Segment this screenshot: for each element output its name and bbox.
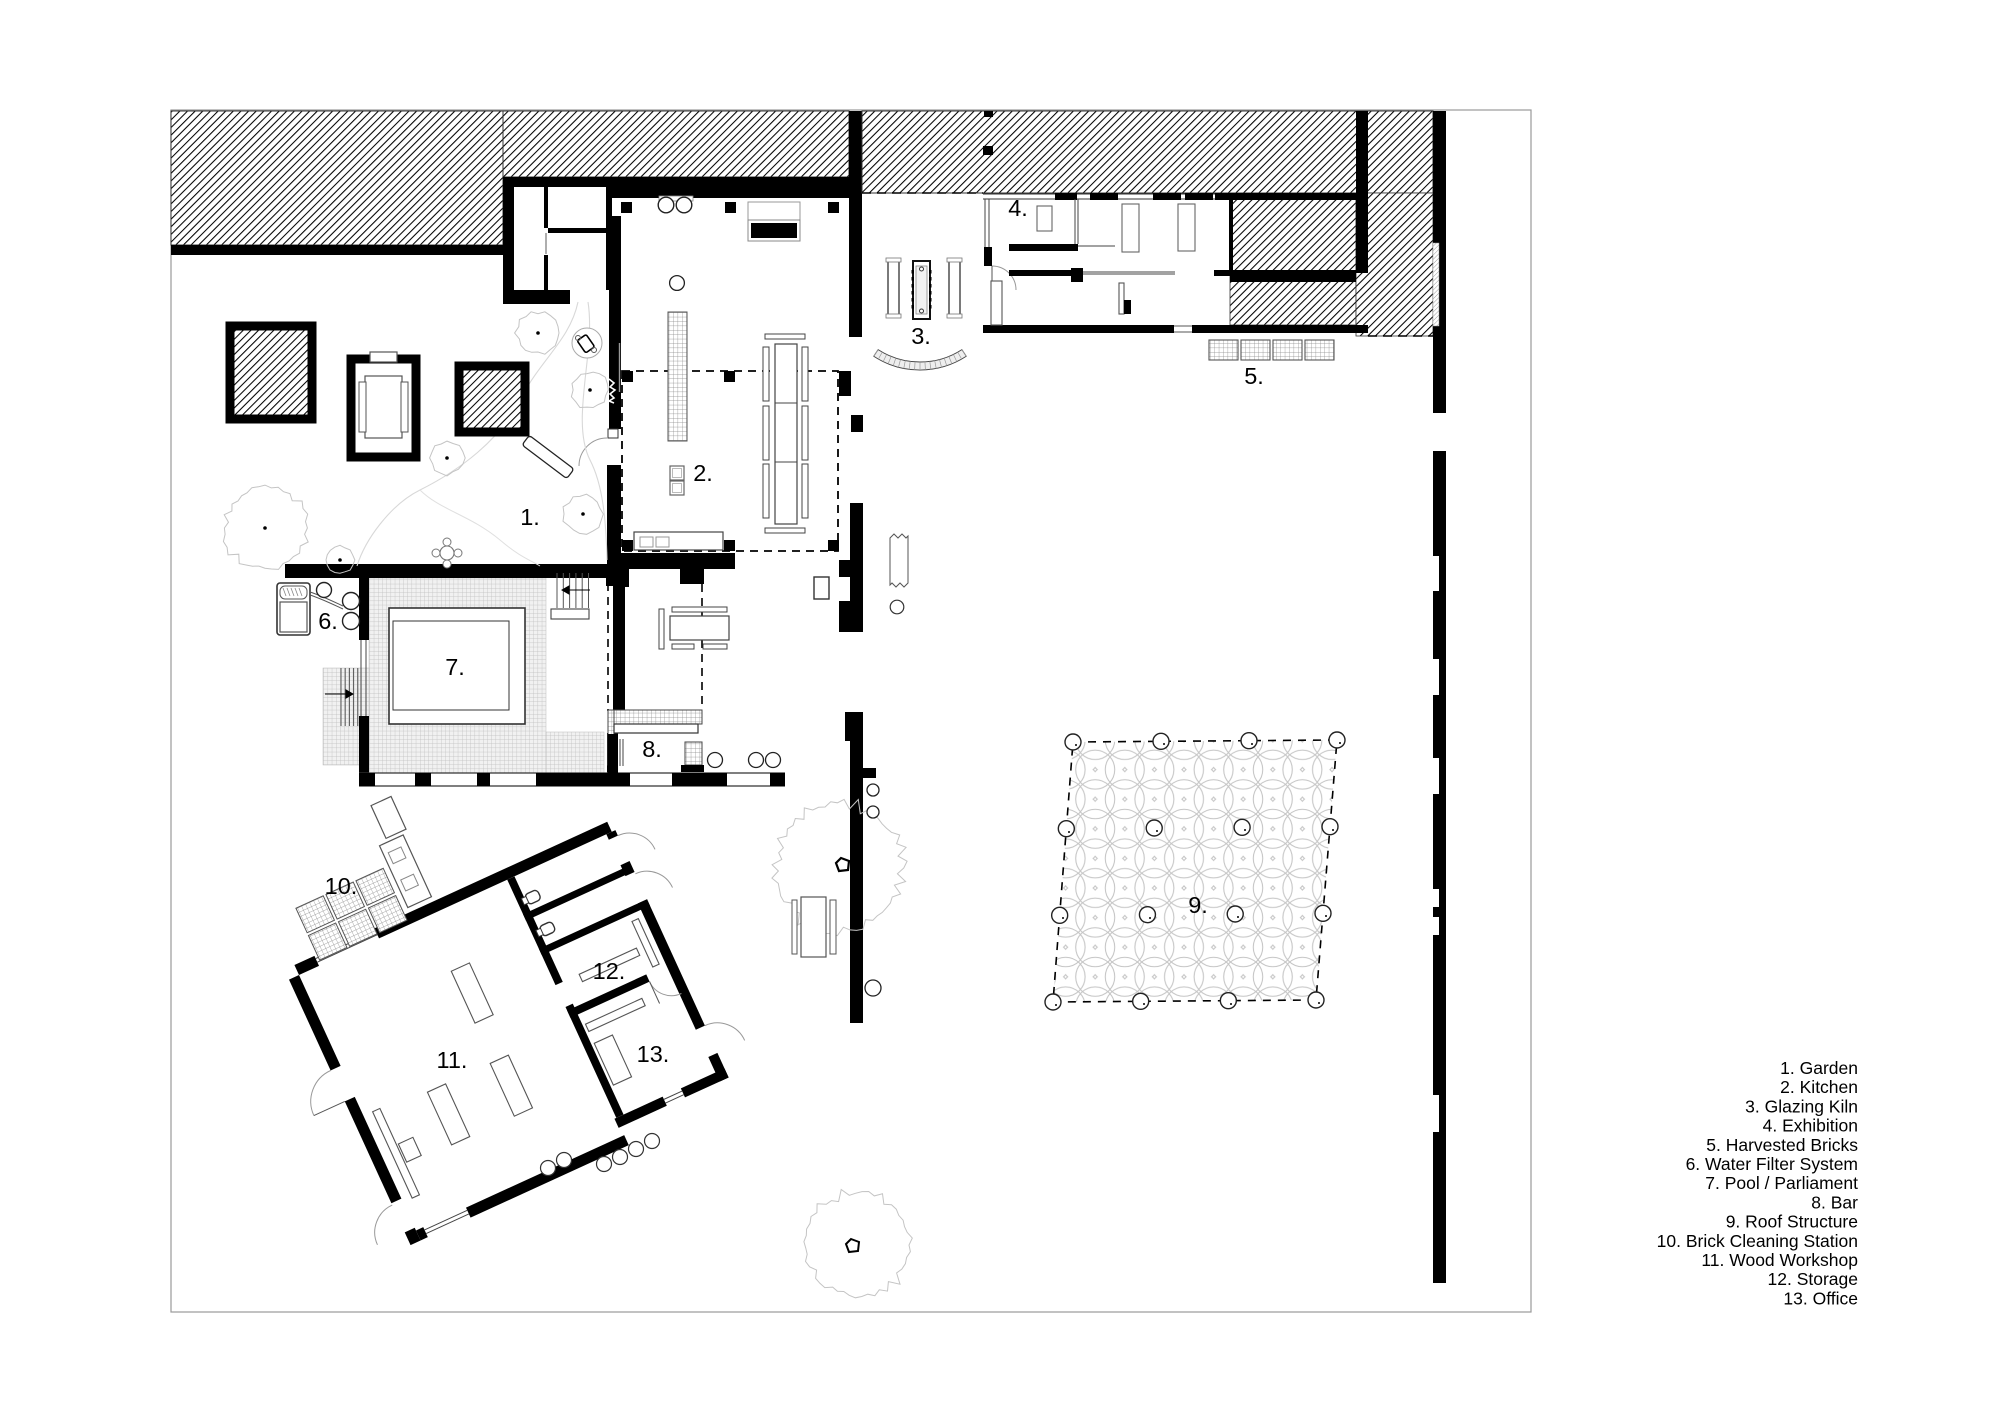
svg-text:11. Wood Workshop: 11. Wood Workshop <box>1701 1250 1858 1270</box>
svg-text:3. Glazing Kiln: 3. Glazing Kiln <box>1745 1096 1858 1116</box>
svg-text:7. Pool / Parliament: 7. Pool / Parliament <box>1705 1173 1858 1193</box>
svg-text:13. Office: 13. Office <box>1783 1288 1858 1308</box>
svg-text:12. Storage: 12. Storage <box>1768 1269 1858 1289</box>
svg-text:6. Water Filter System: 6. Water Filter System <box>1686 1154 1858 1174</box>
svg-text:9. Roof Structure: 9. Roof Structure <box>1726 1212 1858 1232</box>
svg-text:10. Brick Cleaning Station: 10. Brick Cleaning Station <box>1657 1231 1858 1251</box>
svg-text:5.: 5. <box>1244 363 1264 389</box>
svg-text:4.: 4. <box>1008 195 1028 221</box>
svg-text:6.: 6. <box>318 608 338 634</box>
svg-text:9.: 9. <box>1188 892 1208 918</box>
svg-text:8.: 8. <box>642 736 662 762</box>
svg-text:8. Bar: 8. Bar <box>1811 1192 1858 1212</box>
svg-text:2.: 2. <box>693 460 713 486</box>
svg-text:7.: 7. <box>445 654 465 680</box>
svg-text:1. Garden: 1. Garden <box>1780 1058 1858 1078</box>
svg-text:4. Exhibition: 4. Exhibition <box>1763 1116 1858 1136</box>
svg-text:5. Harvested Bricks: 5. Harvested Bricks <box>1706 1135 1858 1155</box>
svg-text:13.: 13. <box>637 1041 670 1067</box>
svg-text:12.: 12. <box>593 958 626 984</box>
svg-text:1.: 1. <box>520 504 540 530</box>
svg-text:3.: 3. <box>911 323 931 349</box>
svg-text:2. Kitchen: 2. Kitchen <box>1780 1077 1858 1097</box>
svg-text:10.: 10. <box>325 873 358 899</box>
svg-text:11.: 11. <box>437 1047 468 1073</box>
